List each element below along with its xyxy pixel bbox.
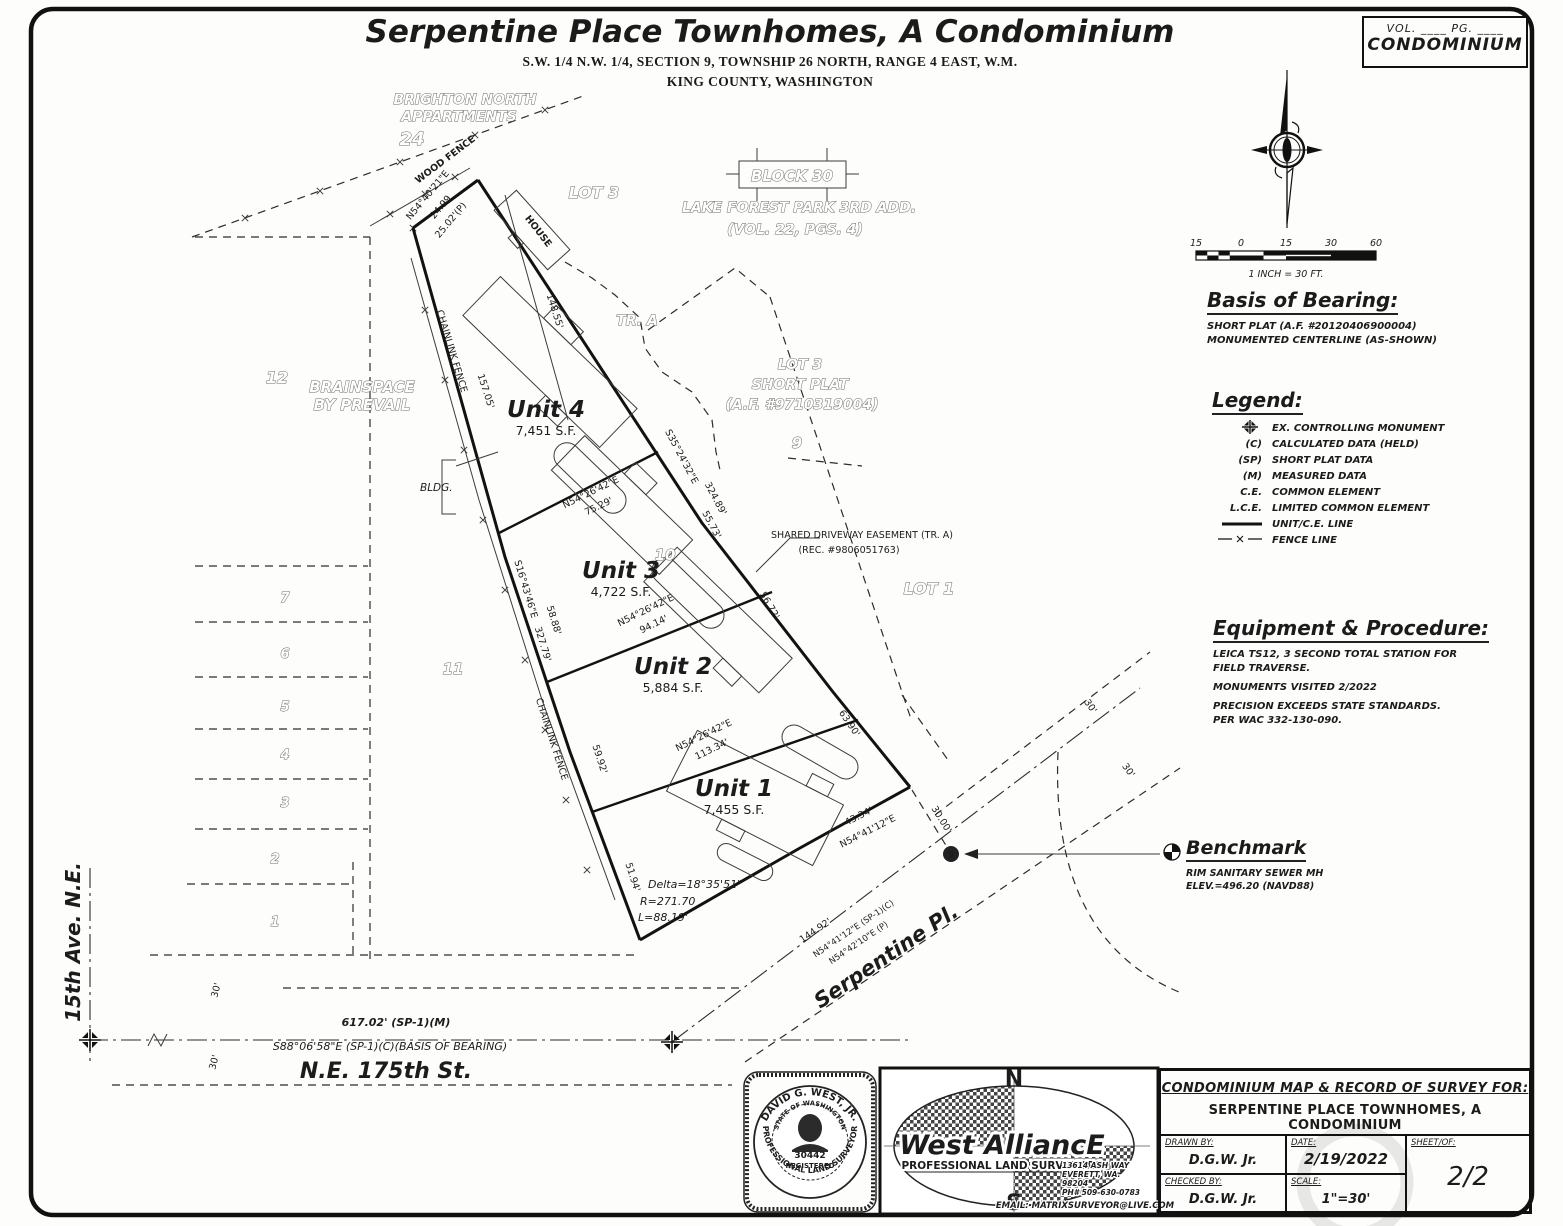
label-unit2-sf: 5,884 S.F. — [643, 680, 704, 695]
sewer-manhole-icon: S — [943, 846, 959, 862]
label-24: 24 — [399, 129, 424, 150]
checked-by-label: CHECKED BY: — [1165, 1177, 1222, 1187]
label-lot1: LOT 1 — [904, 579, 955, 598]
line-break-symbol — [148, 1034, 167, 1046]
drawn-by-cell: DRAWN BY: D.G.W. Jr. — [1161, 1136, 1287, 1175]
manhole-letter: S — [948, 851, 954, 861]
label-block30: BLOCK 30 — [751, 167, 833, 185]
label-brighton-1: BRIGHTON NORTH — [394, 92, 537, 108]
label-lot1l: 1 — [270, 915, 279, 930]
label-brg-3524: S35°24'32"E — [662, 428, 700, 486]
label-lot3-sp-2: SHORT PLAT — [752, 377, 850, 393]
scale-tick-0: 0 — [1238, 238, 1244, 249]
legend-panel: Legend: EX. CONTROLLING MONUMENT (C) CAL… — [1212, 388, 1522, 548]
label-unit3-sf: 4,722 S.F. — [591, 584, 652, 599]
label-unit1: Unit 1 — [695, 776, 773, 802]
legend-symbol: L.C.E. — [1212, 503, 1272, 514]
equipment-line-5: PER WAC 332-130-090. — [1213, 714, 1523, 728]
legend-symbol: (M) — [1212, 471, 1272, 482]
legend-label: FENCE LINE — [1272, 535, 1337, 546]
scale-tick-15b: 15 — [1280, 238, 1292, 249]
benchmark-line-1: RIM SANITARY SEWER MH — [1186, 867, 1416, 880]
logo-addr4: PH# 509-630-0783 — [1062, 1188, 1140, 1197]
controlling-monument-icon — [1212, 420, 1272, 437]
surveyor-stamp: DAVID G. WEST, JR. PROFESSIONAL LAND SUR… — [744, 1072, 876, 1212]
label-lot4: 4 — [279, 748, 289, 763]
drawn-by-label: DRAWN BY: — [1165, 1138, 1214, 1148]
logo-addr3: 98204 — [1062, 1179, 1088, 1188]
label-brg-8806: S88°06'58"E (SP-1)(C)(BASIS OF BEARING) — [273, 1040, 507, 1053]
label-30-00: 30.00' — [929, 804, 954, 835]
legend-symbol: (C) — [1212, 439, 1272, 450]
sheet-border — [31, 9, 1532, 1215]
label-arclen: L=88.19' — [638, 911, 688, 924]
title-block-heading-2: SERPENTINE PLACE TOWNHOMES, A CONDOMINIU… — [1161, 1103, 1529, 1133]
label-30ft-a: 30' — [1081, 697, 1098, 715]
label-easement-1: SHARED DRIVEWAY EASEMENT (TR. A) — [771, 530, 953, 541]
label-lot6: 6 — [280, 647, 289, 662]
dimension-labels: WOOD FENCE N54°40'21"E 24.99 25.02'(P) H… — [61, 134, 1137, 1084]
page-subtitle-2: KING COUNTY, WASHINGTON — [250, 74, 1290, 90]
equipment-line-4: PRECISION EXCEEDS STATE STANDARDS. — [1213, 700, 1523, 714]
label-56-72: 56.72' — [757, 590, 781, 621]
title-block-grid: DRAWN BY: D.G.W. Jr. DATE: 2/19/2022 SHE… — [1161, 1136, 1529, 1214]
legend-label: MEASURED DATA — [1272, 471, 1367, 482]
label-lot3-sp-3: (A.F. #9710319004) — [725, 397, 878, 413]
condominium-label: CONDOMINIUM — [1364, 35, 1526, 55]
label-617-02: 617.02' (SP-1)(M) — [342, 1016, 451, 1029]
legend-item-unit-line: UNIT/C.E. LINE — [1212, 516, 1522, 532]
legend-label: COMMON ELEMENT — [1272, 487, 1380, 498]
scale-caption: 1 INCH = 30 FT. — [1248, 269, 1323, 280]
date-cell: DATE: 2/19/2022 — [1287, 1136, 1407, 1175]
label-unit4: Unit 4 — [507, 397, 585, 423]
legend-symbol: C.E. — [1212, 487, 1272, 498]
label-lot3-top: LOT 3 — [569, 183, 620, 202]
checked-by-cell: CHECKED BY: D.G.W. Jr. — [1161, 1175, 1287, 1214]
label-brainspace-1: BRAINSPACE — [309, 378, 415, 396]
vol-pg-line: VOL. ____ PG. ____ — [1364, 22, 1526, 35]
label-30ft-d: 30' — [207, 1054, 221, 1071]
logo-addr2: EVERETT, WA. — [1062, 1170, 1120, 1179]
company-logo-block: N S West AlliancE PROFESSIONAL LAND SURV… — [880, 1067, 1175, 1216]
sheet-cell: SHEET/OF: 2/2 — [1407, 1136, 1529, 1214]
benchmark-arrow — [964, 849, 1160, 859]
label-lake-forest-park: LAKE FOREST PARK 3RD ADD. — [682, 200, 916, 216]
label-unit1-sf: 7,455 S.F. — [704, 802, 765, 817]
label-58-88: 58.88' — [544, 604, 563, 636]
drawn-by-value: D.G.W. Jr. — [1161, 1153, 1285, 1168]
basis-of-bearing-panel: Basis of Bearing: SHORT PLAT (A.F. #2012… — [1207, 288, 1507, 348]
scale-value: 1"=30' — [1287, 1192, 1405, 1207]
date-label: DATE: — [1291, 1138, 1316, 1148]
legend-label: UNIT/C.E. LINE — [1272, 519, 1353, 530]
logo-email: EMAIL: MATRIXSURVEYOR@LIVE.COM — [996, 1201, 1175, 1211]
equipment-panel: Equipment & Procedure: LEICA TS12, 3 SEC… — [1213, 616, 1523, 728]
date-value: 2/19/2022 — [1287, 1150, 1405, 1168]
sheet-label: SHEET/OF: — [1411, 1138, 1456, 1148]
legend-item-calculated: (C) CALCULATED DATA (HELD) — [1212, 436, 1522, 452]
equipment-line-3: MONUMENTS VISITED 2/2022 — [1213, 681, 1523, 695]
equipment-line-1: LEICA TS12, 3 SECOND TOTAL STATION FOR — [1213, 648, 1523, 662]
label-vol22: (VOL. 22, PGS. 4) — [727, 222, 863, 238]
stamp-registered: REGISTERED — [785, 1162, 834, 1170]
title-block-heading: CONDOMINIUM MAP & RECORD OF SURVEY FOR: … — [1161, 1071, 1529, 1136]
label-51-94: 51.94' — [623, 861, 643, 893]
label-brainspace-2: BY PREVAIL — [314, 396, 411, 414]
monument-icon — [79, 1029, 101, 1051]
fence-line-icon — [1212, 534, 1272, 547]
label-bldg: BLDG. — [420, 482, 453, 494]
label-9: 9 — [792, 434, 802, 452]
sheet-header: Serpentine Place Townhomes, A Condominiu… — [250, 14, 1290, 90]
legend-item-measured: (M) MEASURED DATA — [1212, 468, 1522, 484]
sheet-value: 2/2 — [1407, 1162, 1529, 1192]
scale-cell: SCALE: 1"=30' — [1287, 1175, 1407, 1214]
logo-n: N — [1005, 1067, 1023, 1092]
label-lot3l: 3 — [280, 796, 289, 811]
label-easement-2: (REC. #9806051763) — [798, 545, 899, 556]
basis-title: Basis of Bearing: — [1207, 288, 1398, 315]
page-subtitle-1: S.W. 1/4 N.W. 1/4, SECTION 9, TOWNSHIP 2… — [250, 54, 1290, 70]
label-12: 12 — [266, 368, 288, 387]
vol-pg-box: VOL. ____ PG. ____ CONDOMINIUM — [1362, 16, 1528, 68]
scale-tick-60: 60 — [1370, 238, 1382, 249]
logo-name: West AlliancE — [899, 1130, 1105, 1161]
label-lot5: 5 — [280, 700, 289, 715]
legend-title: Legend: — [1212, 388, 1303, 415]
logo-addr1: 13614 ASH WAY — [1062, 1161, 1131, 1170]
label-tract-a: TR. A — [616, 313, 658, 329]
legend-label: SHORT PLAT DATA — [1272, 455, 1373, 466]
label-house: HOUSE — [522, 213, 553, 249]
label-unit4-sf: 7,451 S.F. — [516, 423, 577, 438]
label-15th-ave: 15th Ave. N.E. — [61, 862, 85, 1022]
scale-bar: 15 0 15 30 60 1 INCH = 30 FT. — [1190, 238, 1382, 280]
label-unit3: Unit 3 — [582, 558, 660, 584]
label-30ft-b: 30' — [1119, 761, 1136, 779]
legend-item-lce: L.C.E. LIMITED COMMON ELEMENT — [1212, 500, 1522, 516]
basis-line-1: SHORT PLAT (A.F. #20120406900004) — [1207, 320, 1507, 334]
label-lot7: 7 — [280, 591, 290, 606]
label-chainlink-upper: CHAINLINK FENCE — [434, 309, 470, 394]
benchmark-panel: Benchmark RIM SANITARY SEWER MH ELEV.=49… — [1186, 837, 1416, 894]
monument-icon — [661, 1031, 683, 1053]
label-ne-175th: N.E. 175th St. — [300, 1059, 472, 1084]
benchmark-title: Benchmark — [1186, 837, 1306, 862]
page-title: Serpentine Place Townhomes, A Condominiu… — [250, 14, 1290, 50]
stamp-number: 30442 — [794, 1151, 825, 1161]
adjacent-parcel-labels: BRIGHTON NORTH APPARTMENTS 24 LOT 3 BLOC… — [266, 92, 955, 930]
unit-ce-line-icon — [1212, 519, 1272, 530]
legend-item-short-plat: (SP) SHORT PLAT DATA — [1212, 452, 1522, 468]
label-11: 11 — [443, 660, 464, 678]
plat-drawing: S BRIGHTON NORTH APPARTMENTS 24 LOT 3 BL… — [0, 0, 1563, 1226]
label-30ft-c: 30' — [209, 982, 223, 999]
label-radius: R=271.70 — [640, 895, 695, 908]
scale-label: SCALE: — [1291, 1177, 1321, 1187]
legend-symbol: (SP) — [1212, 455, 1272, 466]
label-lot2: 2 — [270, 852, 279, 867]
title-block-heading-1: CONDOMINIUM MAP & RECORD OF SURVEY FOR: — [1161, 1081, 1529, 1096]
label-delta: Delta=18°35'51" — [648, 878, 742, 891]
legend-label: LIMITED COMMON ELEMENT — [1272, 503, 1429, 514]
label-lot3-sp-1: LOT 3 — [778, 357, 823, 373]
street-centerlines — [88, 688, 1140, 1062]
scale-tick-15a: 15 — [1190, 238, 1202, 249]
legend-item-fence-line: FENCE LINE — [1212, 532, 1522, 548]
label-59-92: 59.92' — [590, 743, 610, 775]
legend-label: EX. CONTROLLING MONUMENT — [1272, 423, 1445, 434]
scale-tick-30: 30 — [1325, 238, 1337, 249]
legend-item-common-element: C.E. COMMON ELEMENT — [1212, 484, 1522, 500]
checked-by-value: D.G.W. Jr. — [1161, 1192, 1285, 1207]
basis-line-2: MONUMENTED CENTERLINE (AS-SHOWN) — [1207, 334, 1507, 348]
benchmark-icon — [1164, 844, 1180, 860]
equipment-line-2: FIELD TRAVERSE. — [1213, 662, 1523, 676]
legend-item-monument: EX. CONTROLLING MONUMENT — [1212, 420, 1522, 436]
label-157-05: 157.05' — [475, 372, 497, 410]
title-block: CONDOMINIUM MAP & RECORD OF SURVEY FOR: … — [1158, 1068, 1532, 1214]
survey-sheet: S BRIGHTON NORTH APPARTMENTS 24 LOT 3 BL… — [0, 0, 1563, 1226]
benchmark-line-2: ELEV.=496.20 (NAVD88) — [1186, 880, 1416, 893]
north-arrow-icon — [1251, 70, 1323, 228]
legend-label: CALCULATED DATA (HELD) — [1272, 439, 1419, 450]
label-unit2: Unit 2 — [634, 654, 712, 680]
equipment-title: Equipment & Procedure: — [1213, 616, 1489, 643]
label-brighton-2: APPARTMENTS — [400, 109, 516, 125]
